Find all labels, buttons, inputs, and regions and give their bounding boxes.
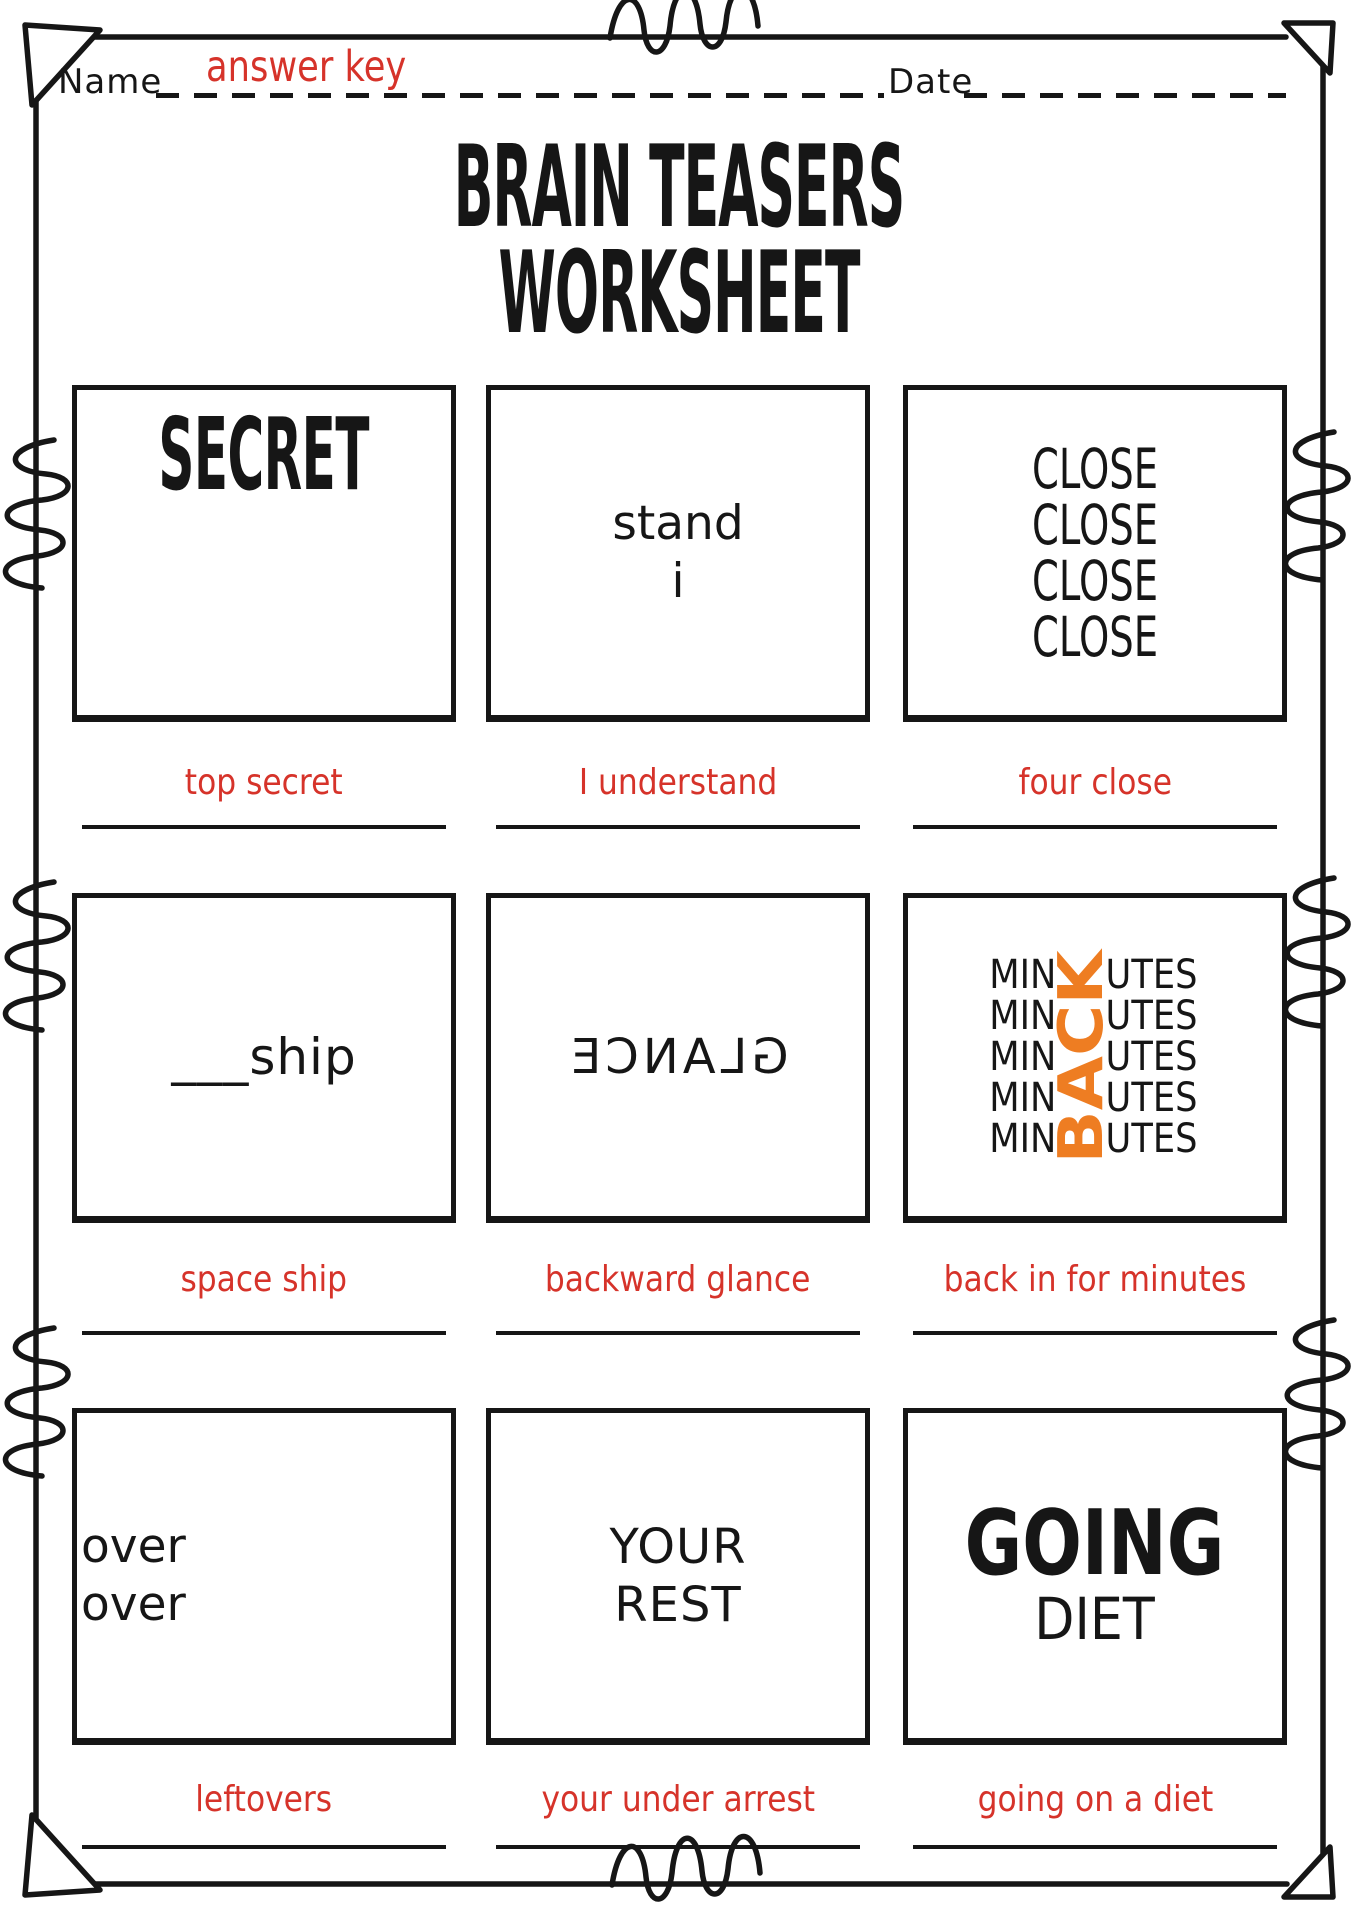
close-word-line: CLOSE <box>1032 609 1158 665</box>
page-title-line1: BRAIN TEASERS <box>367 134 992 240</box>
puzzle-box-ship: ___ship <box>72 893 456 1223</box>
puzzle-box-minutes: MINUTES MINUTES MINUTES MINUTES MINUTES … <box>903 893 1287 1223</box>
answer-line <box>82 1845 446 1849</box>
corner-triangle-bottom-right <box>1284 1847 1333 1897</box>
answer-backward-glance: backward glance <box>486 1259 870 1300</box>
puzzle-box-glance: GLANCE <box>486 893 870 1223</box>
puzzle-text-your: YOUR <box>610 1518 747 1576</box>
border-squiggle-left-2 <box>5 882 68 1030</box>
corner-triangle-top-right <box>1284 23 1333 73</box>
puzzle-text-going-diet: GOING DIET <box>928 1501 1261 1651</box>
close-word-line: CLOSE <box>1032 497 1158 553</box>
puzzle-text-minutes-block: MINUTES MINUTES MINUTES MINUTES MINUTES … <box>975 955 1214 1160</box>
answer-leftovers: leftovers <box>72 1779 456 1820</box>
puzzle-text-glance-mirrored: GLANCE <box>567 1029 789 1085</box>
puzzle-text-going: GOING <box>965 1501 1225 1587</box>
border-squiggle-left-1 <box>5 440 68 588</box>
puzzle-text-over1: over <box>81 1518 186 1576</box>
close-word-line: CLOSE <box>1032 553 1158 609</box>
name-value-answer-key: answer key <box>206 42 406 92</box>
answer-your-under-arrest: your under arrest <box>486 1779 870 1820</box>
answer-space-ship: space ship <box>72 1259 456 1300</box>
answer-four-close: four close <box>903 762 1287 803</box>
puzzle-text-diet: DIET <box>945 1587 1245 1651</box>
border-squiggle-right-3 <box>1285 1320 1348 1468</box>
puzzle-text-stand: stand <box>612 495 743 553</box>
puzzle-box-going-diet: GOING DIET <box>903 1408 1287 1745</box>
puzzle-text-back-vertical: BACK <box>1045 950 1117 1163</box>
border-squiggle-right-2 <box>1285 878 1348 1026</box>
answer-line <box>913 1845 1277 1849</box>
border-squiggle-left-3 <box>5 1328 68 1476</box>
answer-back-in-for-minutes: back in for minutes <box>903 1259 1287 1300</box>
border-squiggle-right-1 <box>1285 432 1348 580</box>
close-word-line: CLOSE <box>1032 441 1158 497</box>
answer-line <box>496 1331 860 1335</box>
name-label: Name <box>58 62 162 102</box>
page-title: BRAIN TEASERS WORKSHEET <box>0 134 1358 346</box>
puzzle-box-close: CLOSE CLOSE CLOSE CLOSE <box>903 385 1287 722</box>
puzzle-text-i: i <box>612 553 743 611</box>
puzzle-text-ship: ___ship <box>171 1028 356 1086</box>
answer-line <box>913 1331 1277 1335</box>
brain-teasers-worksheet: Name answer key Date BRAIN TEASERS WORKS… <box>0 0 1358 1920</box>
answer-i-understand: I understand <box>486 762 870 803</box>
date-blank-line <box>964 93 1286 98</box>
puzzle-box-over-over: over over <box>72 1408 456 1745</box>
border-squiggle-top <box>610 0 758 52</box>
puzzle-text-over-over: over over <box>77 1518 186 1634</box>
puzzle-text-stand-i: stand i <box>612 495 743 611</box>
corner-triangle-bottom-left <box>25 1815 100 1895</box>
puzzle-box-your-rest: YOUR REST <box>486 1408 870 1745</box>
answer-going-on-a-diet: going on a diet <box>903 1779 1287 1820</box>
answer-line <box>82 1331 446 1335</box>
puzzle-box-secret: SECRET <box>72 385 456 722</box>
date-label: Date <box>888 62 973 102</box>
puzzle-text-rest: REST <box>610 1576 747 1634</box>
puzzle-box-stand-i: stand i <box>486 385 870 722</box>
puzzle-text-secret: SECRET <box>159 396 370 513</box>
answer-line <box>496 825 860 829</box>
puzzle-text-over2: over <box>81 1576 186 1634</box>
puzzle-text-close-stack: CLOSE CLOSE CLOSE CLOSE <box>1005 441 1185 665</box>
puzzle-text-your-rest: YOUR REST <box>610 1518 747 1634</box>
answer-line <box>496 1845 860 1849</box>
answer-top-secret: top secret <box>72 762 456 803</box>
answer-line <box>82 825 446 829</box>
name-blank-line <box>156 93 884 98</box>
page-title-line2: WORKSHEET <box>367 240 992 346</box>
answer-line <box>913 825 1277 829</box>
